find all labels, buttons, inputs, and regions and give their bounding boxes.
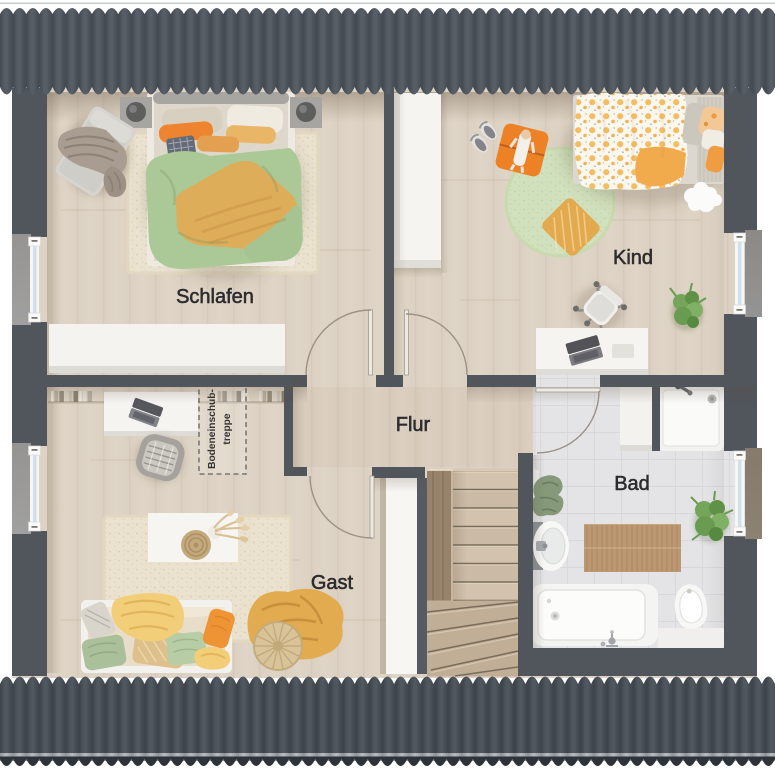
svg-text:Bad: Bad [614,473,650,495]
svg-text:treppe: treppe [222,413,233,444]
svg-text:Schlafen: Schlafen [176,286,254,308]
svg-text:Gast: Gast [311,572,354,594]
svg-text:Kind: Kind [613,247,653,269]
svg-text:Flur: Flur [396,414,431,436]
